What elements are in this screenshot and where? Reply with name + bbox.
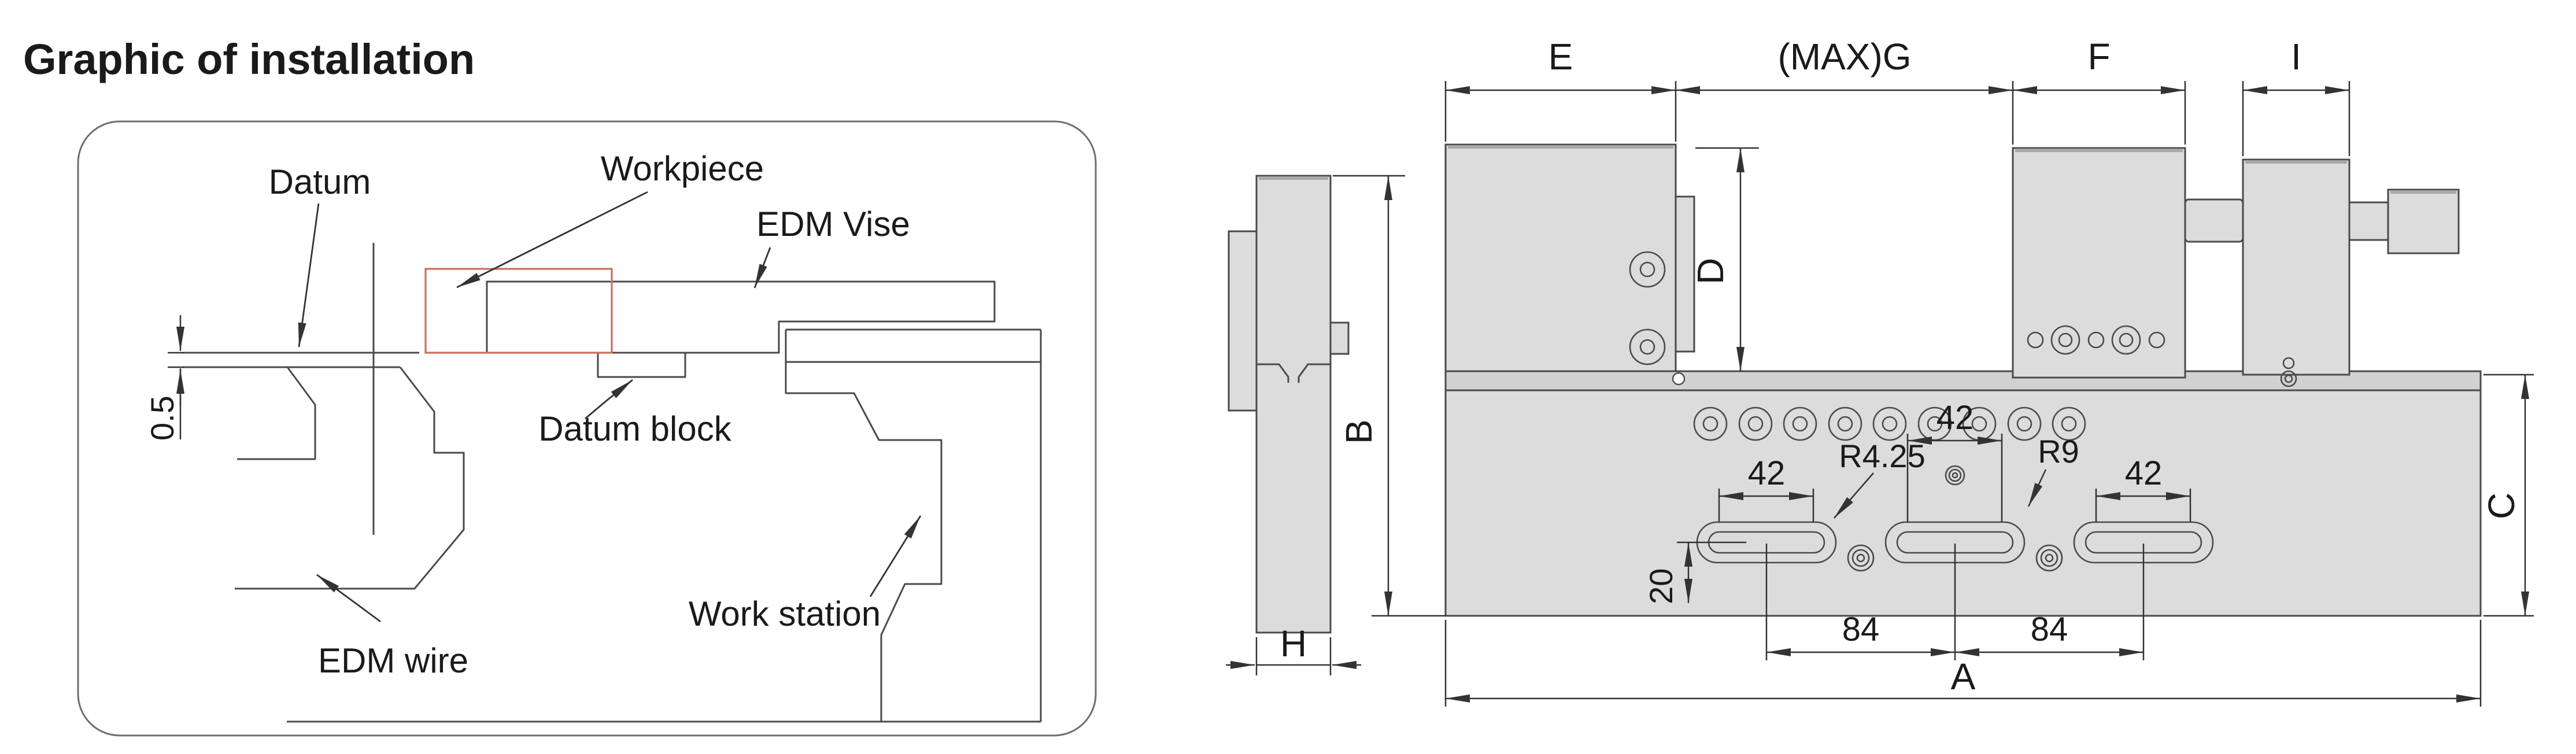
workpiece-leader-line <box>457 192 648 287</box>
edm-wire-leader-line <box>317 575 380 622</box>
dim-slot-spacing-right: 84 <box>2031 611 2068 648</box>
page: Graphic of installation <box>0 0 2576 754</box>
datum-block-outline <box>598 353 685 377</box>
side-view-body <box>1256 176 1330 633</box>
label-work-station: Work station <box>689 594 881 633</box>
handle-knob-body <box>2388 190 2459 253</box>
dim-slot-length-middle: 42 <box>1936 399 1974 437</box>
dim-slot-length-left: 42 <box>1748 454 1786 492</box>
dim-label-d: D <box>1690 258 1731 284</box>
dim-slot-length-right: 42 <box>2125 454 2163 492</box>
dim-label-i: I <box>2291 36 2301 77</box>
installation-leaders <box>299 192 921 622</box>
work-station-step-profile <box>786 330 941 722</box>
dim-label-e: E <box>1548 36 1573 77</box>
dim-label-f: F <box>2087 36 2110 77</box>
dim-slot-edge-offset: 20 <box>1643 568 1679 604</box>
clamp-block-body <box>2243 160 2349 375</box>
movable-jaw-body <box>2013 148 2185 378</box>
side-view-tab <box>1330 323 1348 354</box>
dim-datum-offset: 0.5 <box>144 396 180 441</box>
installation-panel: Graphic of installation <box>23 35 1096 735</box>
vise-technical-drawing: E (MAX)G F I B D H A C 42 42 42 84 84 R4… <box>1226 36 2534 707</box>
dim-label-h: H <box>1280 623 1307 664</box>
label-edm-wire: EDM wire <box>318 641 468 680</box>
movable-jaw <box>2013 148 2185 378</box>
wire-guide-right-profile <box>235 367 464 589</box>
fixed-jaw-body <box>1446 145 1676 371</box>
dim-label-a: A <box>1951 656 1976 697</box>
datum-leader-line <box>299 204 319 347</box>
handle-knob <box>2388 190 2459 253</box>
drawing-canvas: Graphic of installation <box>0 0 2576 754</box>
fixed-jaw <box>1446 145 1694 371</box>
rail-notch <box>1673 373 1684 385</box>
dim-label-max-g: (MAX)G <box>1777 36 1911 77</box>
side-view-jaw-plate <box>1229 231 1256 411</box>
label-edm-vise: EDM Vise <box>756 205 910 243</box>
dim-slot-outer-radius: R9 <box>2038 433 2079 470</box>
label-workpiece: Workpiece <box>601 149 764 188</box>
label-datum-block: Datum block <box>538 409 731 448</box>
label-datum: Datum <box>269 162 371 201</box>
edm-vise-outline <box>487 282 995 353</box>
wire-guide-upper-left <box>237 367 315 459</box>
side-view <box>1229 176 1348 633</box>
lead-screw-left <box>2185 199 2243 242</box>
page-title: Graphic of installation <box>23 35 475 83</box>
dim-label-c: C <box>2481 493 2522 519</box>
clamp-block <box>2243 160 2349 386</box>
dim-label-b: B <box>1338 419 1380 444</box>
dim-slot-inner-radius: R4.25 <box>1839 438 1925 474</box>
lead-screw-right <box>2349 202 2388 240</box>
dim-slot-spacing-left: 84 <box>1842 611 1880 648</box>
